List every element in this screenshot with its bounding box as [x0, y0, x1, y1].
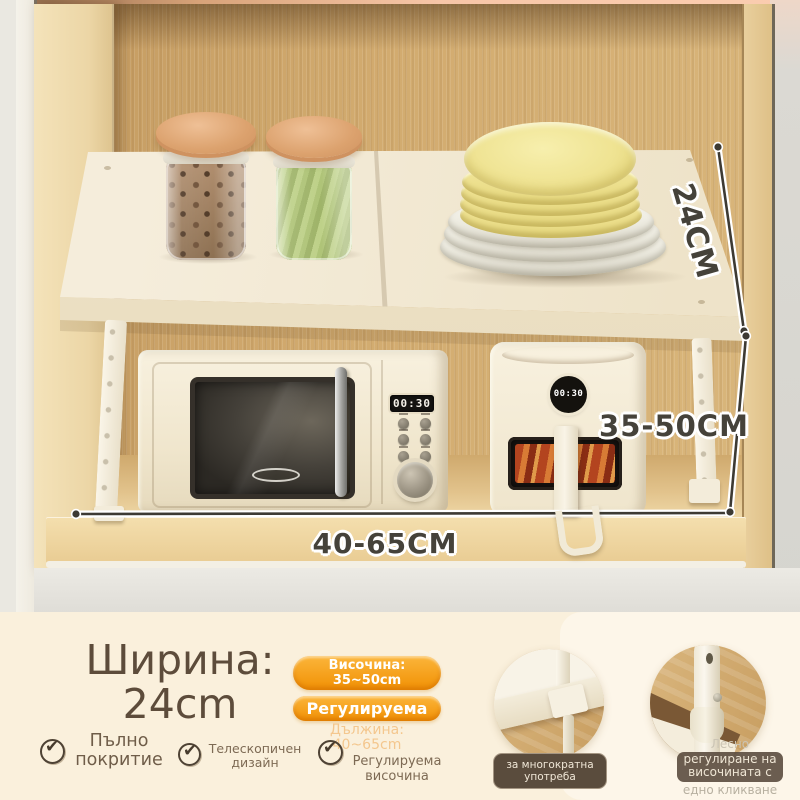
- adjustment-hole: [706, 653, 713, 664]
- check-icon: ✔: [318, 740, 343, 765]
- check-icon: ✔: [178, 743, 201, 766]
- air-fryer-hanging-strap: [555, 505, 605, 558]
- dimension-label-width: 40-65CM: [305, 527, 465, 559]
- click-button-pin: [713, 693, 722, 702]
- detail-photo-corner-bracket: [494, 649, 604, 759]
- product-photo: 00:30 00:30: [0, 0, 800, 612]
- feature-full-coverage: ✔ Пълнопокритие: [40, 732, 167, 770]
- info-panel: Ширина: 24cm Височина: 35~50cm Регулируе…: [0, 612, 800, 800]
- adjustable-badge: Регулируема: [293, 696, 441, 721]
- height-badge: Височина: 35~50cm: [293, 656, 441, 690]
- check-icon: ✔: [40, 739, 65, 764]
- width-title: Ширина: 24cm: [50, 638, 310, 726]
- width-title-line1: Ширина:: [50, 638, 310, 682]
- width-title-line2: 24cm: [50, 682, 310, 726]
- detail-caption-2: Леснорегулиране нависочината седно кликв…: [655, 738, 800, 797]
- feature-adjustable-height: ✔ Регулируемависочина: [318, 740, 445, 784]
- dimension-label-height: 35-50CM: [594, 409, 754, 443]
- detail-caption-1: за многократна употреба: [493, 753, 607, 789]
- feature-telescopic-design: ✔ Телескопичендизайн: [178, 742, 303, 770]
- dimension-lines: [0, 0, 800, 612]
- product-image: 00:30 00:30: [0, 0, 800, 800]
